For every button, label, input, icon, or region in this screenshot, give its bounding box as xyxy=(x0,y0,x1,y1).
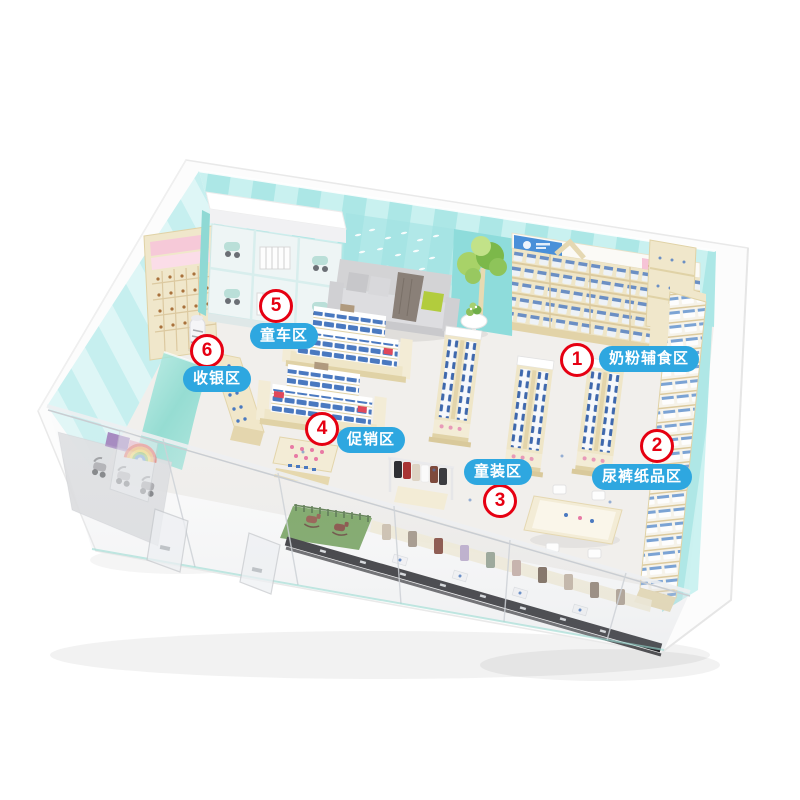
pillow xyxy=(346,272,369,293)
zone-badge-5: 5 xyxy=(259,289,293,323)
zone-number: 3 xyxy=(495,490,506,512)
zone-label: 促销区 xyxy=(347,431,395,448)
zone-pill-3: 童装区 xyxy=(464,459,532,485)
zone-number: 1 xyxy=(572,349,583,371)
zone-number: 2 xyxy=(652,435,663,457)
lime-pillow xyxy=(421,291,444,312)
zone-badge-4: 4 xyxy=(305,412,339,446)
zone-label: 童车区 xyxy=(260,327,308,344)
zone-badge-1: 1 xyxy=(560,343,594,377)
zone-number: 5 xyxy=(271,295,282,317)
zone-pill-1: 奶粉辅食区 xyxy=(599,346,699,372)
store-3d-floorplan: 1 奶粉辅食区 2 尿裤纸品区 3 童装区 4 促销区 5 童车区 6 收银区 xyxy=(0,0,800,800)
zone-label: 尿裤纸品区 xyxy=(602,468,682,485)
pillow xyxy=(368,276,391,297)
zone-label: 收银区 xyxy=(193,370,241,387)
zone-pill-6: 收银区 xyxy=(183,366,251,392)
zone-label: 奶粉辅食区 xyxy=(609,350,689,367)
zone-pill-2: 尿裤纸品区 xyxy=(592,464,692,490)
zone-label: 童装区 xyxy=(474,463,522,480)
entrance-door-left xyxy=(147,509,188,572)
zone-pill-4: 促销区 xyxy=(337,427,405,453)
zone-pill-5: 童车区 xyxy=(250,323,318,349)
zone-number: 4 xyxy=(317,418,328,440)
floorplan-illustration xyxy=(0,0,800,800)
zone-badge-3: 3 xyxy=(483,484,517,518)
zone-number: 6 xyxy=(202,340,213,362)
zone-badge-2: 2 xyxy=(640,429,674,463)
zone-badge-6: 6 xyxy=(190,334,224,368)
